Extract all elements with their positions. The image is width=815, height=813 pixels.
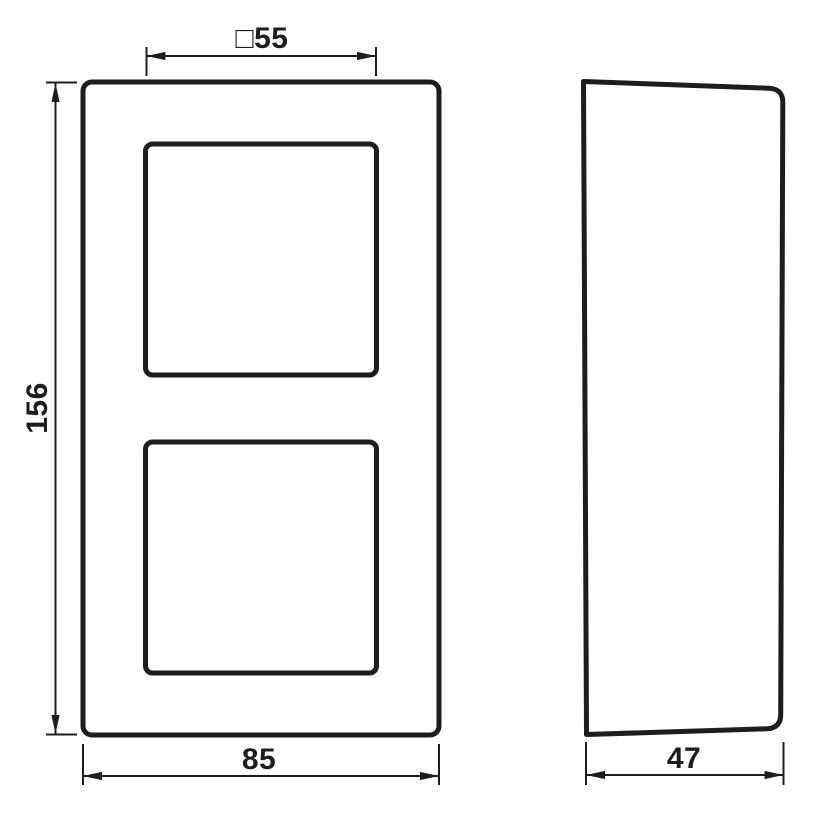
dimension-label-depth: 47 <box>667 742 701 775</box>
dimension-label-height: 156 <box>21 382 54 434</box>
technical-drawing: □55 156 85 47 <box>0 0 815 813</box>
dimension-width: 85 <box>83 743 439 785</box>
drawing-canvas: □55 156 85 47 <box>0 0 815 813</box>
module-opening-bottom <box>146 442 377 673</box>
dimension-height: 156 <box>21 83 77 735</box>
side-view <box>584 82 783 735</box>
dimension-label-width: 85 <box>242 743 276 776</box>
dimension-depth: 47 <box>586 742 784 785</box>
dimension-cutout-width: □55 <box>147 22 377 76</box>
dimension-label-cutout: □55 <box>236 22 289 55</box>
module-opening-top <box>146 144 377 375</box>
front-view <box>83 82 439 735</box>
side-profile-outline <box>584 82 783 735</box>
